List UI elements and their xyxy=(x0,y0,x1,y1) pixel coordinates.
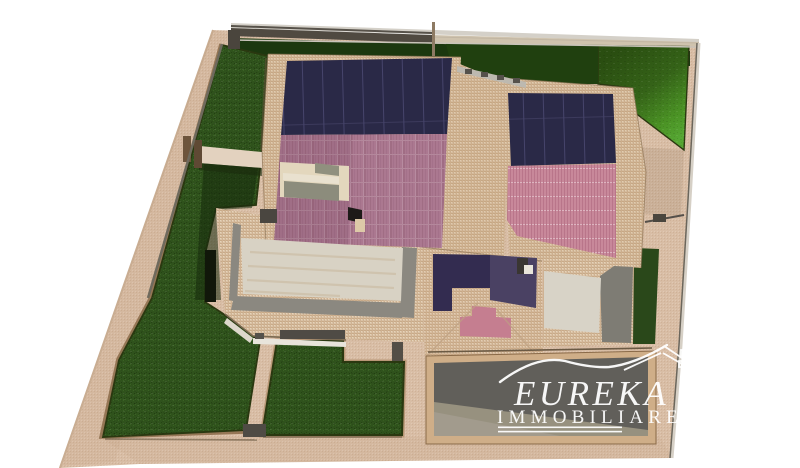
svg-text:IMMOBILIARE: IMMOBILIARE xyxy=(497,407,683,428)
